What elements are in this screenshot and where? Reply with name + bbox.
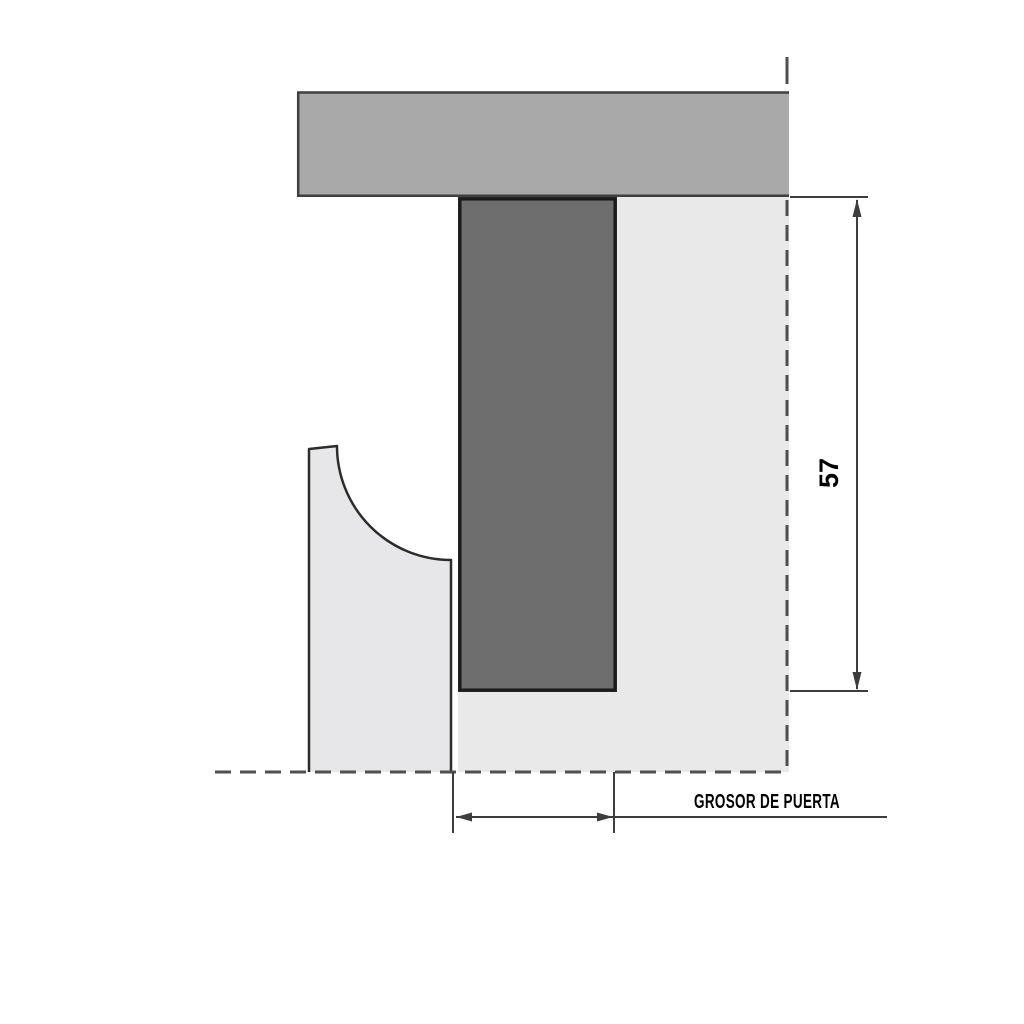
arrowhead-left: [456, 813, 472, 822]
molding-profile: [309, 446, 451, 772]
molding-fill: [309, 446, 451, 772]
door-core-section: [460, 199, 615, 690]
top-frame-fill: [297, 92, 789, 197]
height-dimension-label: 57: [814, 458, 844, 488]
drawing-svg: 57 GROSOR DE PUERTA: [0, 0, 1024, 1024]
arrowhead-up: [853, 199, 862, 217]
arrowhead-down: [853, 672, 862, 690]
horizontal-dimension: GROSOR DE PUERTA: [453, 772, 887, 833]
door-section-drawing: 57 GROSOR DE PUERTA: [0, 0, 1024, 1024]
door-thickness-label: GROSOR DE PUERTA: [694, 791, 840, 813]
top-frame-section: [297, 92, 789, 197]
vertical-dimension: 57: [790, 197, 868, 691]
arrowhead-right: [597, 813, 613, 822]
